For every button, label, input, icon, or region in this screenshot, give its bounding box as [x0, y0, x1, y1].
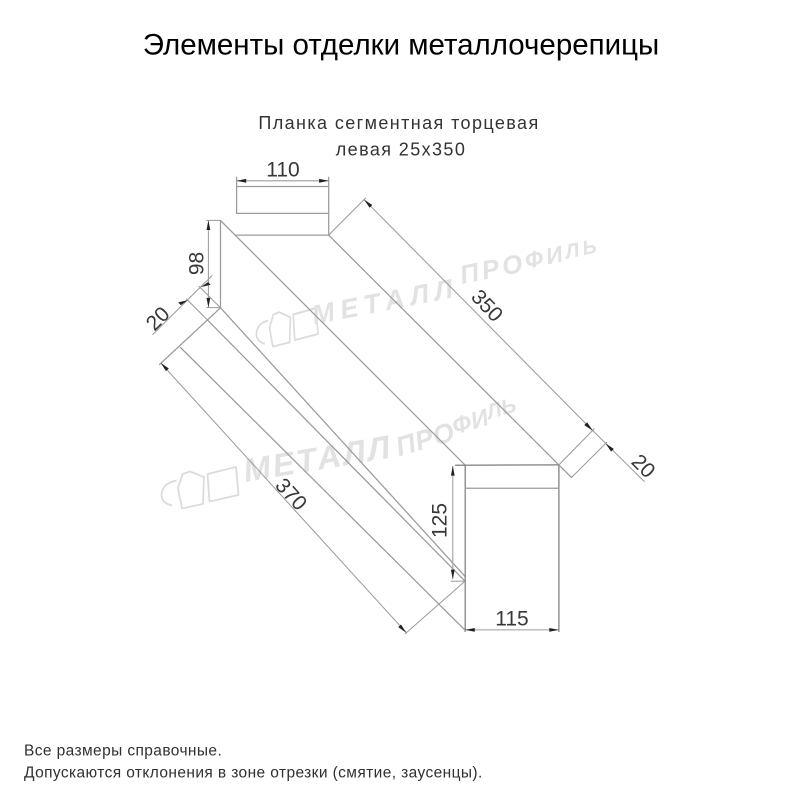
svg-text:МЕТАЛЛ: МЕТАЛЛ	[309, 273, 461, 331]
svg-text:125: 125	[429, 503, 452, 538]
svg-text:Элементы отделки металлочерепи: Элементы отделки металлочерепицы	[143, 29, 659, 62]
svg-text:Допускаются отклонения в зоне: Допускаются отклонения в зоне отрезки (с…	[24, 764, 483, 781]
svg-text:20: 20	[142, 303, 175, 336]
svg-text:Планка сегментная торцевая: Планка сегментная торцевая	[258, 113, 539, 133]
svg-text:115: 115	[495, 608, 528, 631]
svg-text:ПРОФИЛЬ: ПРОФИЛЬ	[457, 232, 603, 290]
svg-text:МЕТАЛЛ: МЕТАЛЛ	[241, 429, 395, 489]
svg-text:98: 98	[186, 252, 209, 275]
svg-text:350: 350	[466, 285, 507, 326]
svg-text:левая 25х350: левая 25х350	[336, 140, 467, 160]
svg-text:110: 110	[266, 159, 299, 182]
svg-text:20: 20	[627, 450, 660, 483]
svg-text:ПРОФИЛЬ: ПРОФИЛЬ	[391, 394, 523, 463]
svg-text:Все размеры справочные.: Все размеры справочные.	[24, 742, 222, 759]
